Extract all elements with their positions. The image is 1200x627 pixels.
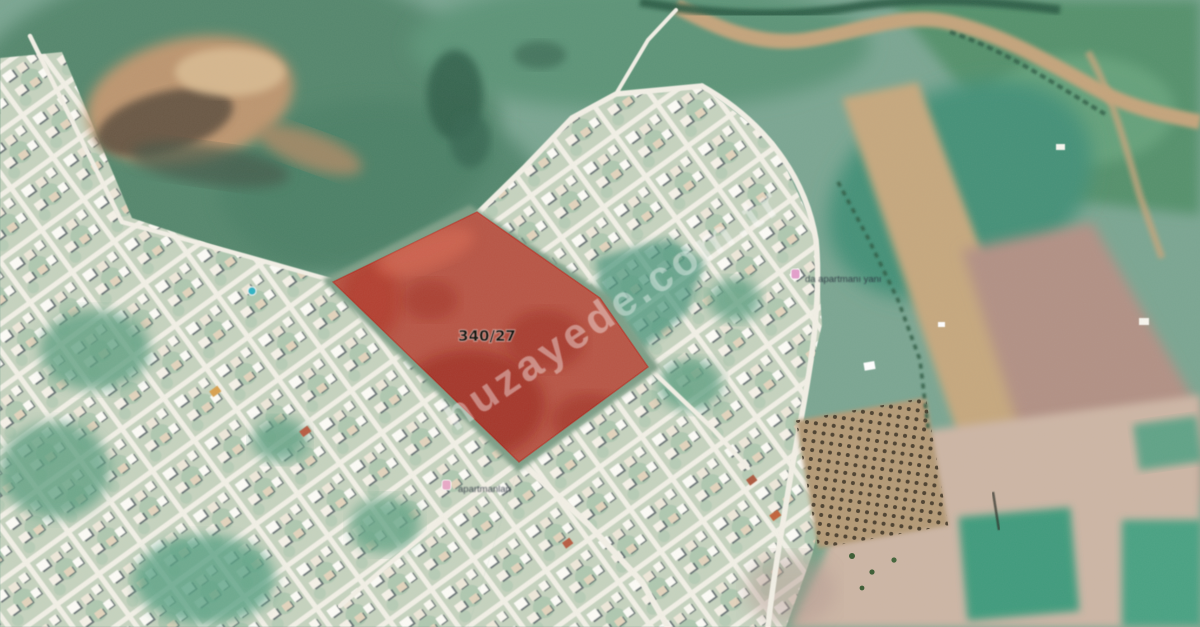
photo-grain-overlay	[0, 0, 1200, 627]
satellite-map-view[interactable]: 340/27 huzayede.com.tr da apartmanı yanı…	[0, 0, 1200, 627]
